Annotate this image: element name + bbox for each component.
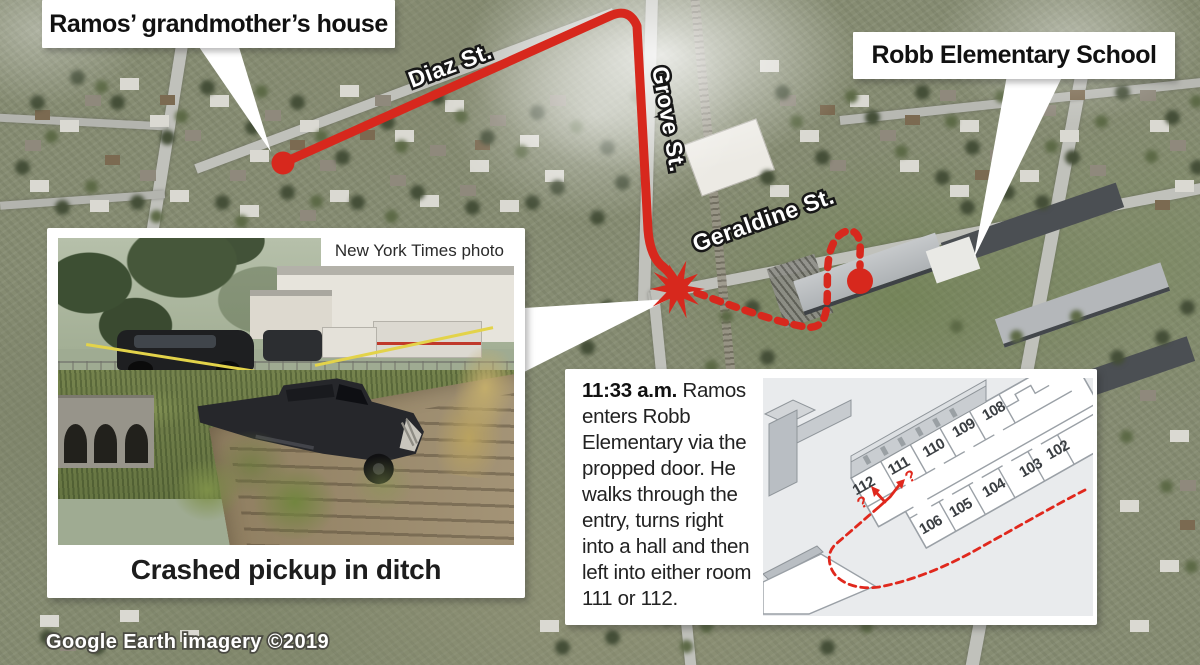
- grass-foreground: [149, 416, 441, 539]
- timeline-panel: 11:33 a.m. Ramos enters Robb Elementary …: [565, 369, 1097, 625]
- callout-grandmother-house: Ramos’ grandmother’s house: [42, 0, 395, 48]
- infographic: Diaz St. Grove St. Geraldine St. Google …: [0, 0, 1200, 665]
- timeline-description: Ramos enters Robb Elementary via the pro…: [582, 379, 751, 610]
- crash-photo: [58, 238, 514, 545]
- photo-credit: New York Times photo: [321, 238, 514, 266]
- callout-grandmother-label: Ramos’ grandmother’s house: [49, 10, 387, 39]
- callout-robb-elementary: Robb Elementary School: [853, 32, 1175, 79]
- floorplan-diagram: 112 111 110 109 108 106 105 104 103 102 …: [763, 378, 1093, 616]
- photo-caption: Crashed pickup in ditch: [47, 554, 525, 586]
- culvert: [58, 395, 154, 469]
- timeline-time: 11:33 a.m.: [582, 379, 677, 402]
- photo-inset-panel: New York Times photo Crashed pickup in d…: [47, 228, 525, 598]
- timeline-text: 11:33 a.m. Ramos enters Robb Elementary …: [582, 378, 760, 612]
- callout-school-label: Robb Elementary School: [872, 41, 1157, 70]
